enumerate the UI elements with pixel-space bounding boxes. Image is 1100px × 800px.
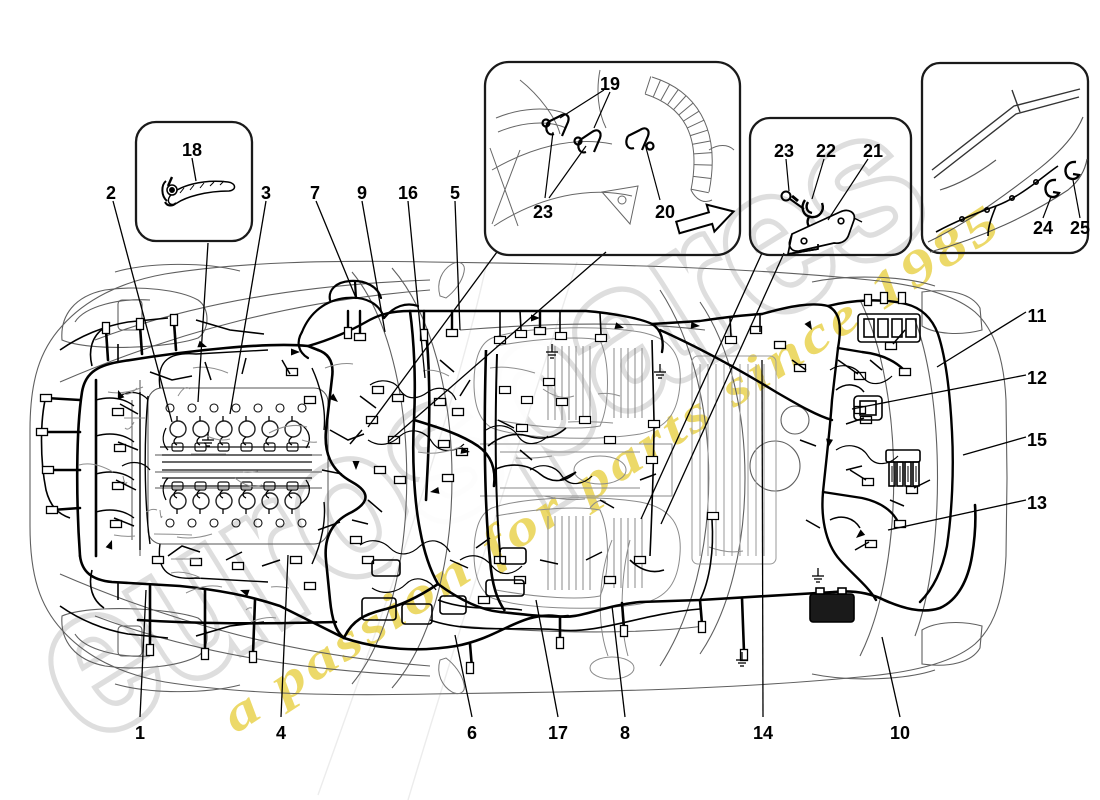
svg-text:11: 11: [1027, 306, 1046, 326]
svg-text:21: 21: [863, 141, 883, 161]
svg-text:14: 14: [753, 723, 773, 743]
svg-text:1: 1: [135, 723, 145, 743]
svg-text:3: 3: [261, 183, 271, 203]
svg-text:19: 19: [600, 74, 620, 94]
svg-text:18: 18: [182, 140, 202, 160]
svg-text:15: 15: [1027, 430, 1047, 450]
svg-text:16: 16: [398, 183, 418, 203]
svg-text:8: 8: [620, 723, 630, 743]
svg-text:20: 20: [655, 202, 675, 222]
svg-text:22: 22: [816, 141, 836, 161]
svg-text:4: 4: [276, 723, 286, 743]
svg-text:9: 9: [357, 183, 367, 203]
svg-text:2: 2: [106, 183, 116, 203]
svg-text:24: 24: [1033, 218, 1053, 238]
svg-text:10: 10: [890, 723, 910, 743]
svg-text:25: 25: [1070, 218, 1090, 238]
svg-text:5: 5: [450, 183, 460, 203]
svg-text:7: 7: [310, 183, 320, 203]
svg-text:12: 12: [1027, 368, 1047, 388]
svg-text:17: 17: [548, 723, 568, 743]
svg-text:6: 6: [467, 723, 477, 743]
svg-text:13: 13: [1027, 493, 1047, 513]
svg-text:23: 23: [533, 202, 553, 222]
svg-text:23: 23: [774, 141, 794, 161]
